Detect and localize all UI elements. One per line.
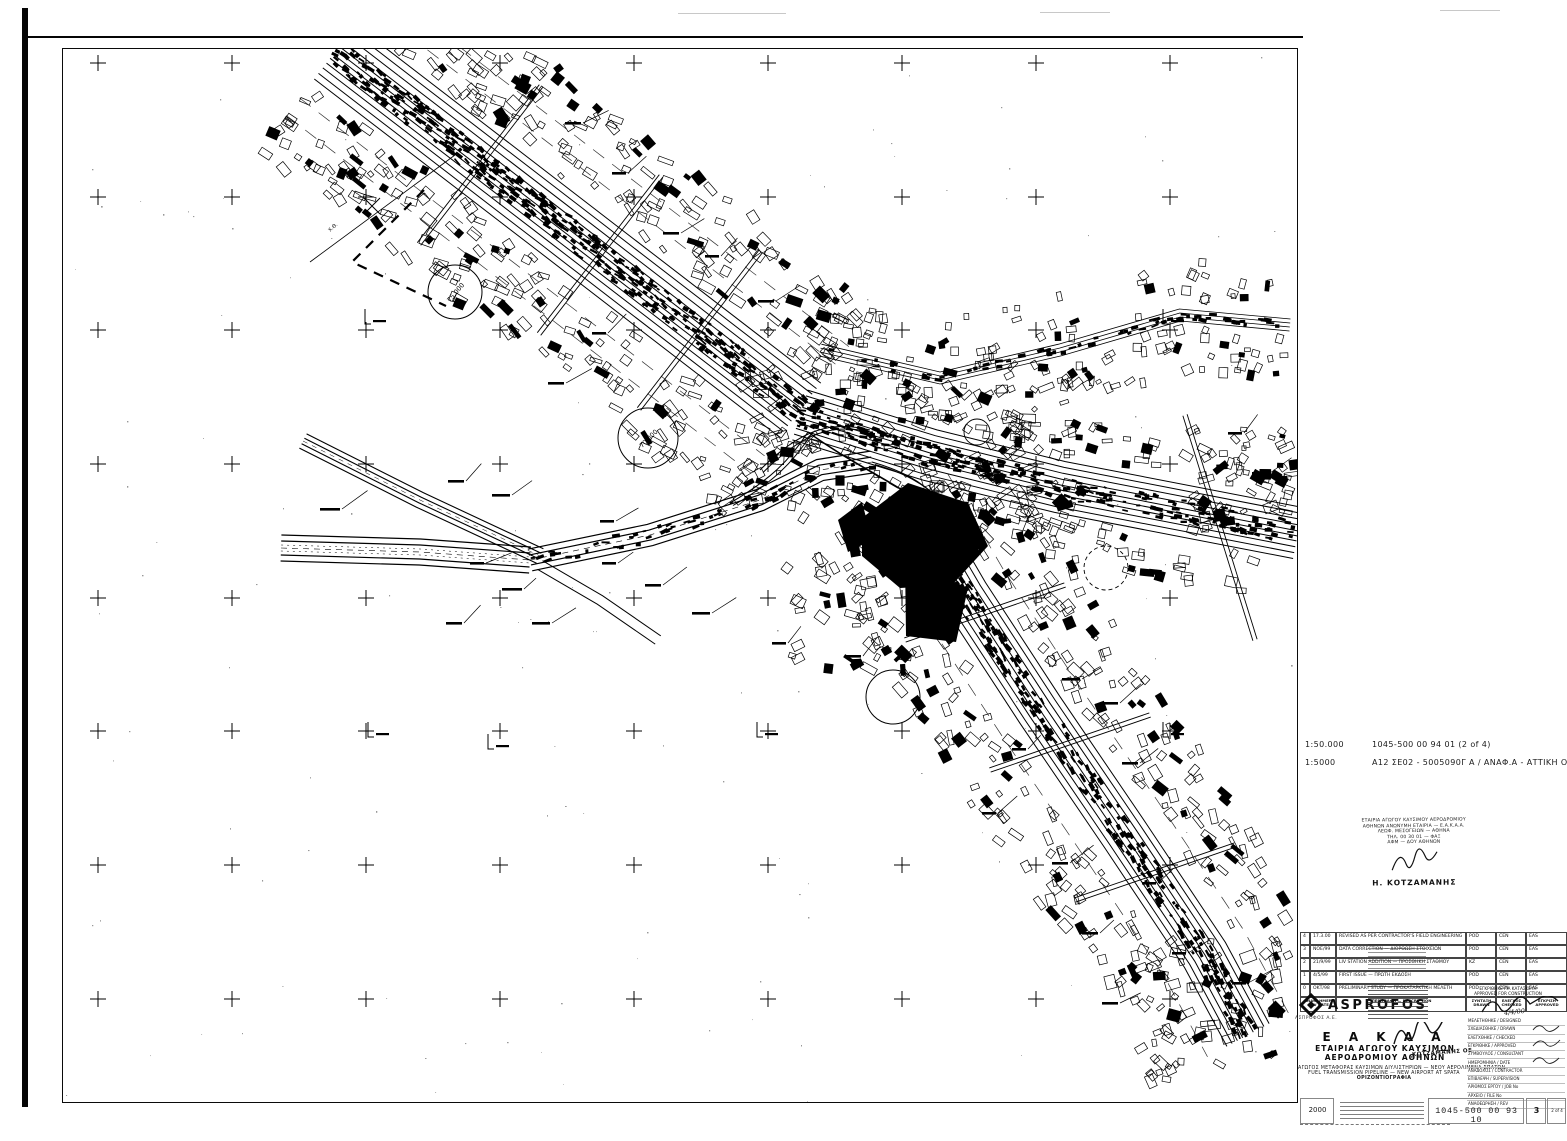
title-line-3: ΟΡΙΖΟΝΤΙΟΓΡΑΦΙΑ bbox=[1298, 1076, 1470, 1081]
afc-note: ΕΓΚΡΙΘΗΚΕ ΓΙΑ ΚΑΤΑΣΚΕΥΗ APPROVED FOR CON… bbox=[1452, 986, 1564, 996]
stamp-name: Η. ΚΟΤΖΑΜΑΝΗΣ bbox=[1352, 877, 1476, 887]
revision-cell-c2: CEN bbox=[1496, 932, 1526, 945]
station-circles: 75.00070.000 bbox=[428, 265, 1128, 724]
scale-value: 2000 bbox=[1309, 1106, 1327, 1114]
side-streets bbox=[417, 85, 1257, 902]
bottom-dashed-rule bbox=[1300, 1124, 1450, 1125]
notes-paragraph bbox=[1368, 986, 1428, 1020]
stamp-signature-icon bbox=[1384, 844, 1444, 879]
pages-value: 2 of 4 bbox=[1551, 1108, 1563, 1113]
revision-cell-c1: POD bbox=[1466, 971, 1496, 984]
revision-cell-no: 1 bbox=[1300, 971, 1310, 984]
revision-cell-date: ΝΟΕ/99 bbox=[1310, 945, 1336, 958]
revision-cell-no: 2 bbox=[1300, 958, 1310, 971]
revision-cell-desc: FIRST ISSUE — ΠΡΩΤΗ ΕΚΔΟΣΗ bbox=[1336, 971, 1466, 984]
revision-cell-no: 3 bbox=[1300, 945, 1310, 958]
field-label: ΑΡΙΘΜΟΣ ΕΡΓΟΥ / JOB No bbox=[1467, 1084, 1565, 1092]
field-entries-handwriting-icon bbox=[1530, 1022, 1566, 1082]
revision-cell-no: 4 bbox=[1300, 932, 1310, 945]
reference-number: 1045-500 00 94 01 (2 of 4) bbox=[1372, 740, 1491, 749]
svg-text:70.000: 70.000 bbox=[638, 428, 660, 450]
revision-cell-c3: EAS bbox=[1526, 971, 1567, 984]
revision-cell-c2: CEN bbox=[1496, 945, 1526, 958]
reference-line-2: 1:5000 Α12 ΣΕ02 - 5005090Γ Α / ΑΝΑΦ.Α - … bbox=[1305, 758, 1567, 767]
reference-line-1: 1:50.000 1045-500 00 94 01 (2 of 4) bbox=[1305, 740, 1491, 749]
stamp-text: ΕΤΑΙΡΙΑ ΑΓΩΓΟΥ ΚΑΥΣΙΜΟΥ ΑΕΡΟΔΡΟΜΙΟΥΑΘΗΝΩ… bbox=[1352, 817, 1476, 846]
reference-number: Α12 ΣΕ02 - 5005090Γ Α / ΑΝΑΦ.Α - ΑΤΤΙΚΗ … bbox=[1372, 758, 1567, 767]
revision-cell-date: 21/9/99 bbox=[1310, 958, 1336, 971]
revision-cell-c1: POD bbox=[1466, 945, 1496, 958]
asprofos-sub-text: ΑΣΠΡΟΦΟΣ Α.Ε. bbox=[1295, 1016, 1337, 1021]
reference-scale: 1:5000 bbox=[1305, 758, 1369, 767]
drawing-title: ΑΓΩΓΟΣ ΜΕΤΑΦΟΡΑΣ ΚΑΥΣΙΜΩΝ ΔΙΥΛΙΣΤΗΡΙΩΝ —… bbox=[1298, 1066, 1470, 1081]
revision-cell-c1: POD bbox=[1466, 932, 1496, 945]
notes-paragraph-2 bbox=[1368, 944, 1426, 970]
drawing-sheet: 75.00070.000Χ.Θ. 1:50.000 1045-500 00 94… bbox=[0, 0, 1567, 1141]
revision-cell-c3: EAS bbox=[1526, 945, 1567, 958]
revision-cell-date: 17.3.00 bbox=[1310, 932, 1336, 945]
revision-cell-c2: CEN bbox=[1496, 958, 1526, 971]
drawing-number-cell: 1045-500 00 93 10 bbox=[1428, 1098, 1524, 1124]
asprofos-logo-icon bbox=[1298, 992, 1325, 1019]
left-highway bbox=[281, 434, 874, 644]
drawing-number: 1045-500 00 93 10 bbox=[1435, 1106, 1518, 1124]
sheet-cell: 3 bbox=[1526, 1098, 1546, 1124]
scale-cell: 2000 bbox=[1300, 1098, 1334, 1124]
sheet-number: 3 bbox=[1534, 1106, 1540, 1115]
revision-cell-c3: EAS bbox=[1526, 932, 1567, 945]
reference-scale: 1:50.000 bbox=[1305, 740, 1369, 749]
revision-cell-c3: EAS bbox=[1526, 958, 1567, 971]
scan-noise bbox=[66, 57, 1293, 1103]
cadastral-parcels bbox=[258, 45, 1298, 1089]
owner-stamp-signature-icon bbox=[1388, 1022, 1458, 1052]
corridor-hatch bbox=[331, 48, 1295, 1039]
plan-graphics: 75.00070.000Χ.Θ. bbox=[66, 0, 1303, 1103]
pages-cell: 2 of 4 bbox=[1547, 1098, 1566, 1124]
revision-cell-c1: KZ bbox=[1466, 958, 1496, 971]
revision-cell-date: 4/5/99 bbox=[1310, 971, 1336, 984]
svg-text:Χ.Θ.: Χ.Θ. bbox=[327, 222, 339, 234]
company-stamp: ΕΤΑΙΡΙΑ ΑΓΩΓΟΥ ΚΑΥΣΙΜΟΥ ΑΕΡΟΔΡΟΜΙΟΥΑΘΗΝΩ… bbox=[1352, 817, 1477, 887]
revision-cell-c2: CEN bbox=[1496, 971, 1526, 984]
bottom-notes bbox=[1340, 1102, 1424, 1120]
